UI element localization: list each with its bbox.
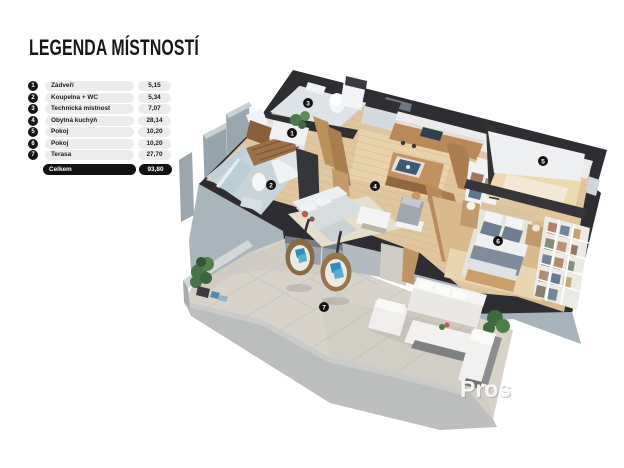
svg-text:3: 3: [306, 100, 310, 107]
svg-text:6: 6: [496, 238, 500, 245]
svg-text:7: 7: [322, 304, 326, 311]
svg-text:Prost: Prost: [460, 376, 519, 402]
svg-text:2: 2: [269, 182, 273, 189]
svg-text:5: 5: [541, 158, 545, 165]
svg-text:4: 4: [373, 183, 377, 190]
svg-text:1: 1: [290, 130, 294, 137]
